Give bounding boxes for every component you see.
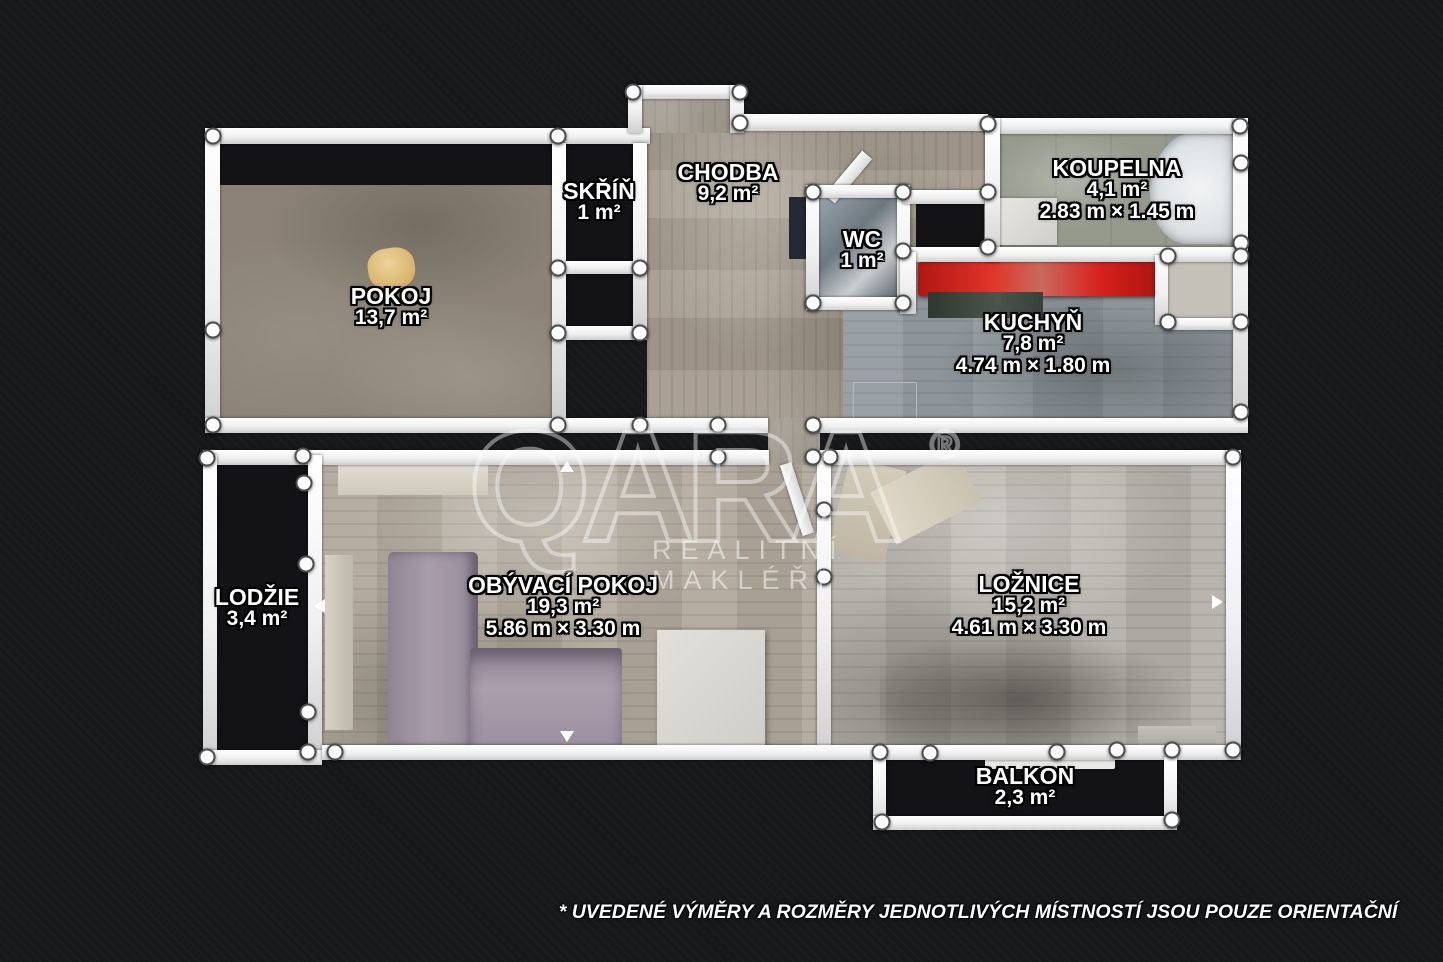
room-name: OBÝVACÍ POKOJ	[468, 574, 658, 596]
skrin-cell-bottom	[566, 274, 633, 326]
room-label-koupelna: KOUPELNA 4,1 m² 2.83 m × 1.45 m	[1040, 157, 1195, 223]
wall-node	[732, 84, 749, 101]
room-dimensions: 4.74 m × 1.80 m	[956, 355, 1111, 377]
sofa-seat	[470, 648, 622, 750]
room-area: 13,7 m²	[351, 307, 432, 329]
wall-node	[980, 116, 997, 133]
wall-node	[199, 450, 216, 467]
room-area: 15,2 m²	[952, 595, 1107, 617]
wall-node	[805, 449, 822, 466]
wall	[1226, 450, 1241, 760]
room-label-pokoj: POKOJ 13,7 m²	[351, 285, 432, 329]
wall-node	[1225, 449, 1242, 466]
wall-node	[298, 556, 315, 573]
wall-node	[1160, 248, 1177, 265]
wall	[628, 85, 744, 99]
room-label-loznice: LOŽNICE 15,2 m² 4.61 m × 3.30 m	[952, 573, 1107, 639]
fridge	[853, 382, 917, 422]
pokoj-unscanned-area	[220, 143, 552, 185]
wall	[820, 418, 1248, 433]
wall-node	[296, 475, 313, 492]
window-sill-strip	[325, 555, 353, 730]
wall-node	[625, 84, 642, 101]
room-name: POKOJ	[351, 285, 432, 307]
room-name: BALKON	[976, 765, 1074, 787]
wall-node	[550, 417, 567, 434]
room-name: KOUPELNA	[1040, 157, 1195, 179]
door-marker-down	[560, 731, 574, 742]
kitchen-counter	[918, 262, 1163, 296]
room-dimensions: 4.61 m × 3.30 m	[952, 617, 1107, 639]
room-area: 2,3 m²	[976, 787, 1074, 809]
wall	[566, 261, 633, 274]
room-label-balkon: BALKON 2,3 m²	[976, 765, 1074, 809]
wall-node	[1049, 744, 1066, 761]
wall-node	[1164, 742, 1181, 759]
wall-node	[816, 569, 833, 586]
wall-node	[922, 745, 939, 762]
room-name: CHODBA	[678, 161, 779, 183]
wall-node	[1164, 812, 1181, 829]
wall-node	[895, 243, 912, 260]
wall-node	[550, 260, 567, 277]
room-dimensions: 5.86 m × 3.30 m	[468, 618, 658, 640]
wall-node	[895, 184, 912, 201]
wall-node	[1109, 742, 1126, 759]
room-label-wc: WC 1 m²	[840, 228, 883, 272]
room-name: LOŽNICE	[952, 573, 1107, 595]
room-name: WC	[840, 228, 883, 250]
room-name: KUCHYŇ	[956, 311, 1111, 333]
wall-node	[550, 128, 567, 145]
cabinet	[338, 462, 488, 495]
entrance-floor	[642, 99, 730, 133]
room-area: 19,3 m²	[468, 596, 658, 618]
wall	[205, 128, 220, 433]
room-area: 3,4 m²	[215, 608, 299, 630]
wall	[903, 247, 1248, 262]
wall-node	[1233, 248, 1250, 265]
room-label-lodzie: LODŽIE 3,4 m²	[215, 586, 299, 630]
coffee-table	[657, 630, 765, 752]
wall-node	[295, 448, 312, 465]
wall-node	[805, 295, 822, 312]
room-name: LODŽIE	[215, 586, 299, 608]
wall	[633, 143, 647, 340]
wall-node	[205, 128, 222, 145]
wall-node	[710, 417, 727, 434]
floor-plan: POKOJ 13,7 m² SKŘÍŇ 1 m² CHODBA 9,2 m² W…	[0, 0, 1443, 962]
room-area: 1 m²	[563, 202, 635, 224]
wall-node	[205, 322, 222, 339]
wall-node	[732, 115, 749, 132]
wall-node	[632, 417, 649, 434]
wall-node	[816, 502, 833, 519]
wall	[820, 450, 1240, 465]
wall	[566, 326, 633, 340]
room-dimensions: 2.83 m × 1.45 m	[1040, 201, 1195, 223]
wall-node	[805, 184, 822, 201]
wall	[985, 118, 1248, 134]
disclaimer-text: * UVEDENÉ VÝMĚRY A ROZMĚRY JEDNOTLIVÝCH …	[522, 901, 1434, 924]
wall-node	[895, 295, 912, 312]
wall-node	[300, 704, 317, 721]
wall-node	[710, 449, 727, 466]
wall-node	[805, 417, 822, 434]
room-label-skrin: SKŘÍŇ 1 m²	[563, 180, 635, 224]
wall-node	[632, 260, 649, 277]
window-marker-right	[1212, 595, 1223, 609]
wall-node	[1233, 314, 1250, 331]
wall-node	[1225, 742, 1242, 759]
wall	[903, 190, 988, 204]
wall-node	[632, 325, 649, 342]
sofa-chaise	[388, 552, 478, 750]
room-label-kuchyn: KUCHYŇ 7,8 m² 4.74 m × 1.80 m	[956, 311, 1111, 377]
wall	[322, 745, 1240, 760]
wall	[873, 816, 1177, 830]
room-label-chodba: CHODBA 9,2 m²	[678, 161, 779, 205]
room-area: 1 m²	[840, 250, 883, 272]
unscanned-square	[916, 198, 984, 250]
door-marker-up	[560, 461, 574, 472]
wall-node	[1160, 314, 1177, 331]
room-area: 7,8 m²	[956, 333, 1111, 355]
window-marker-left	[314, 599, 325, 613]
wall	[205, 128, 650, 144]
wall	[1168, 318, 1233, 330]
wall-node	[980, 184, 997, 201]
wall-node	[205, 417, 222, 434]
wall-node	[1233, 155, 1250, 172]
kitchen-alcove-floor	[1168, 256, 1233, 322]
wall	[806, 185, 819, 310]
wall-node	[980, 239, 997, 256]
wall-node	[327, 744, 344, 761]
room-name: SKŘÍŇ	[563, 180, 635, 202]
wall-node	[1232, 118, 1249, 135]
room-area: 4,1 m²	[1040, 179, 1195, 201]
wall	[203, 450, 769, 465]
wall-node	[1233, 404, 1250, 421]
wall-node	[300, 744, 317, 761]
wall-node	[550, 325, 567, 342]
wall-node	[874, 814, 891, 831]
wall	[205, 418, 768, 433]
wall-node	[872, 744, 889, 761]
wall-node	[822, 449, 839, 466]
wall-node	[199, 749, 216, 766]
room-label-obyvaci-pokoj: OBÝVACÍ POKOJ 19,3 m² 5.86 m × 3.30 m	[468, 574, 658, 640]
room-area: 9,2 m²	[678, 183, 779, 205]
wall	[744, 114, 988, 131]
